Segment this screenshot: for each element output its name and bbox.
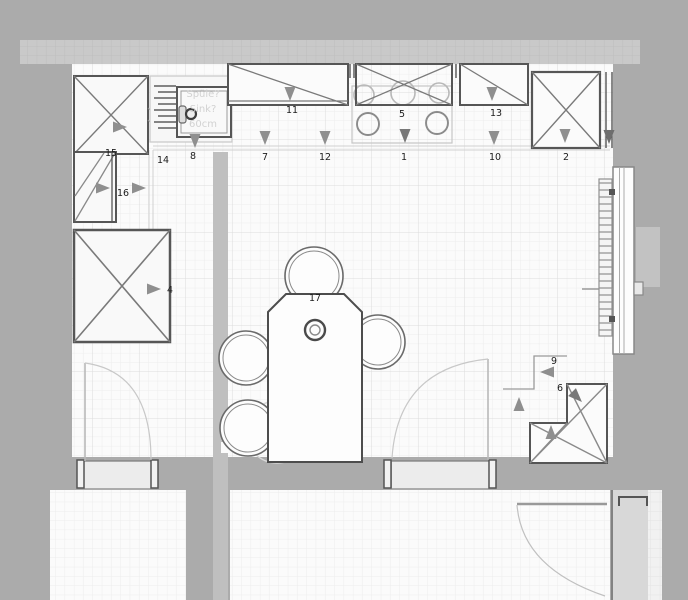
room-bottom-left-grid bbox=[50, 490, 186, 600]
label-item-5: 5 bbox=[399, 109, 405, 120]
label-item-10: 10 bbox=[489, 152, 501, 163]
label-item-15: 15 bbox=[105, 148, 117, 159]
label-item-9: 9 bbox=[551, 356, 557, 367]
label-item-17: 17 bbox=[309, 293, 321, 304]
label-item-14: 14 bbox=[157, 155, 169, 166]
door2-sill bbox=[392, 461, 489, 488]
label-item-1: 1 bbox=[401, 152, 407, 163]
floorplan-canvas: Spüle? Sink? 60cm bbox=[0, 0, 688, 600]
room-bottom-right-grid bbox=[230, 490, 610, 600]
radiator-valve-top bbox=[609, 189, 615, 195]
door1-jamb-right bbox=[151, 460, 158, 488]
door1-jamb-left bbox=[77, 460, 84, 488]
table-vase-outer bbox=[305, 320, 325, 340]
sink-note-line2: Sink? bbox=[190, 104, 217, 115]
door2-jamb-right bbox=[489, 460, 496, 488]
window-exterior-patch bbox=[636, 227, 660, 287]
label-item-4: 4 bbox=[167, 285, 173, 296]
label-item-7: 7 bbox=[262, 152, 268, 163]
sheet-top-strip-grid bbox=[20, 40, 640, 64]
label-item-16: 16 bbox=[117, 188, 129, 199]
window-handle-box bbox=[634, 282, 643, 295]
radiator[interactable] bbox=[599, 179, 615, 336]
floorplan-svg: Spüle? Sink? 60cm bbox=[0, 0, 688, 600]
radiator-valve-bottom bbox=[609, 316, 615, 322]
hall-column bbox=[613, 490, 648, 600]
door2-jamb-left bbox=[384, 460, 391, 488]
sink-unit[interactable]: Spüle? Sink? 60cm bbox=[150, 76, 232, 142]
chair-left-upper[interactable] bbox=[219, 331, 273, 385]
cabinet-4-tall[interactable] bbox=[74, 230, 170, 342]
label-item-6: 6 bbox=[557, 383, 563, 394]
sink-note-line1: Spüle? bbox=[186, 89, 219, 100]
label-item-2: 2 bbox=[563, 152, 569, 163]
radiator-rungs bbox=[599, 179, 612, 336]
label-item-8: 8 bbox=[190, 151, 196, 162]
wall-cabinet-13[interactable] bbox=[460, 64, 528, 105]
cabinet-2-tall[interactable] bbox=[532, 72, 612, 148]
cabinet-16[interactable] bbox=[74, 152, 116, 222]
hall-sliver-grid bbox=[648, 490, 662, 600]
wall-cabinet-11[interactable] bbox=[228, 64, 348, 105]
label-item-12: 12 bbox=[319, 152, 331, 163]
sink-note-line3: 60cm bbox=[189, 119, 217, 130]
door1-sill bbox=[84, 461, 151, 488]
label-item-11: 11 bbox=[286, 105, 298, 116]
label-item-13: 13 bbox=[490, 108, 502, 119]
